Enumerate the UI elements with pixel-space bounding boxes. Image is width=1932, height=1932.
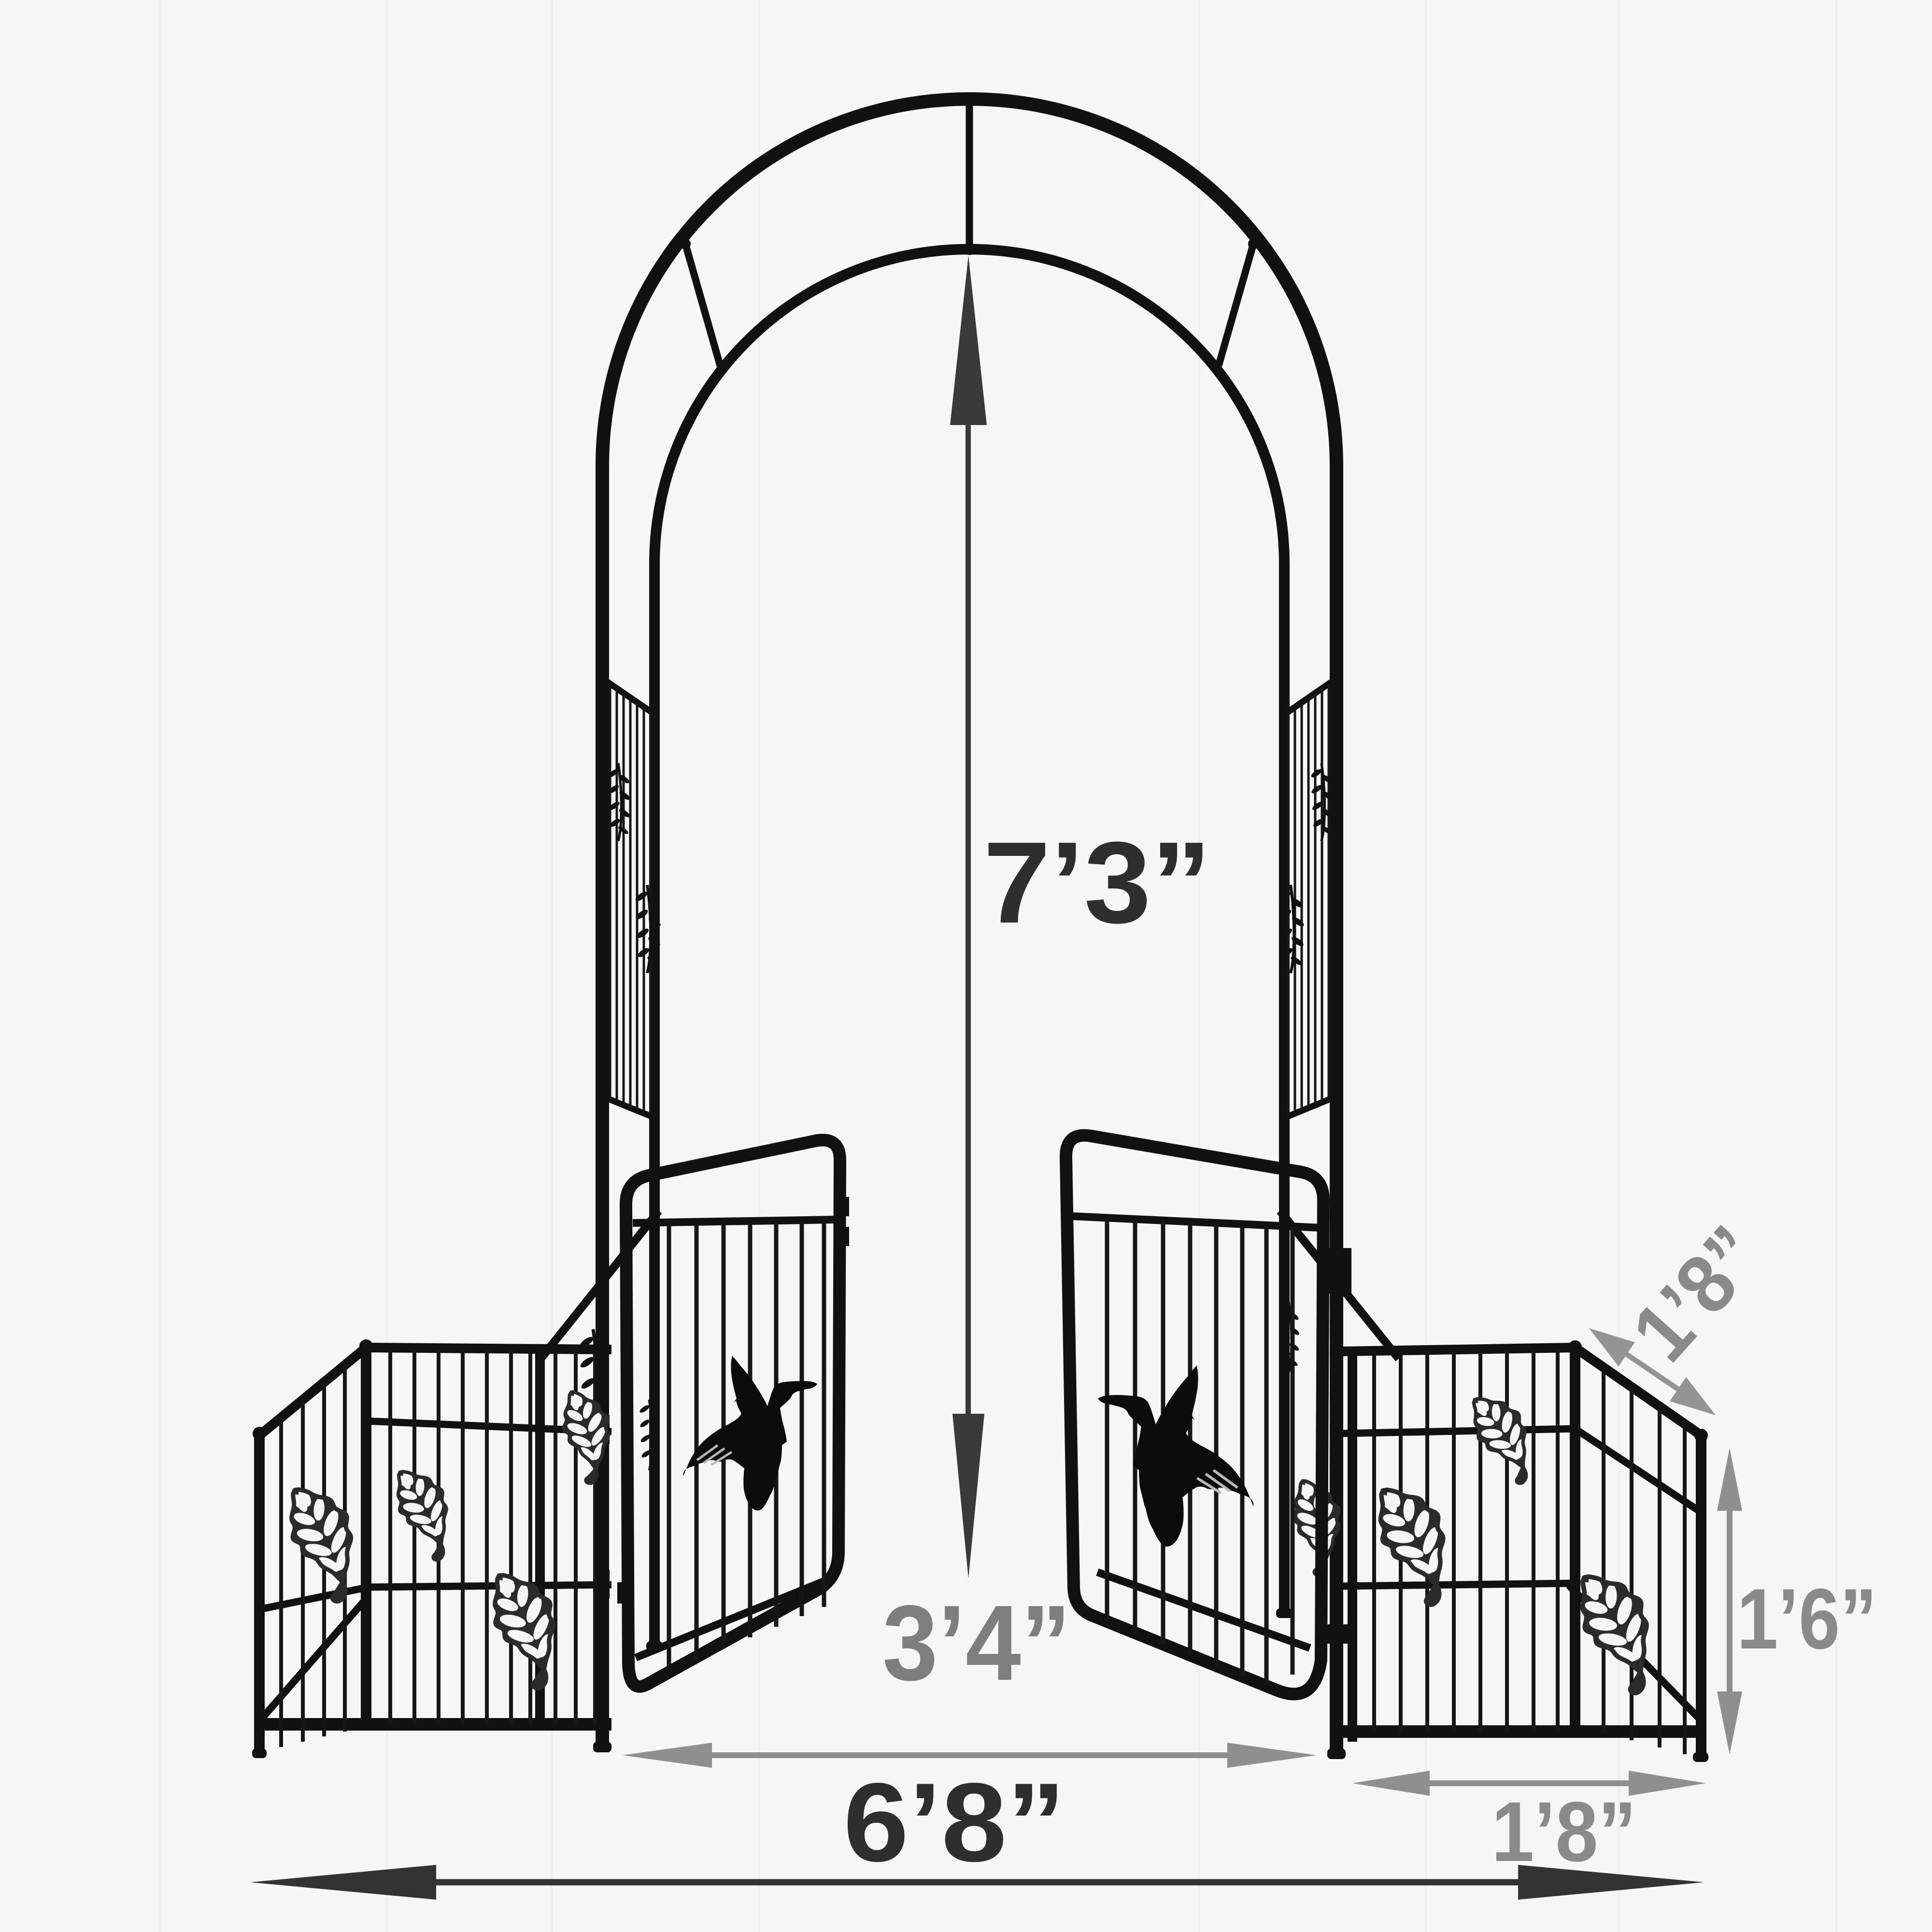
svg-text:1’6”: 1’6”	[1737, 1571, 1877, 1667]
svg-text:3’4”: 3’4”	[882, 1583, 1071, 1703]
svg-text:1’8”: 1’8”	[1492, 1785, 1636, 1879]
svg-text:7’3”: 7’3”	[983, 818, 1211, 947]
svg-text:6’8”: 6’8”	[843, 1760, 1065, 1885]
